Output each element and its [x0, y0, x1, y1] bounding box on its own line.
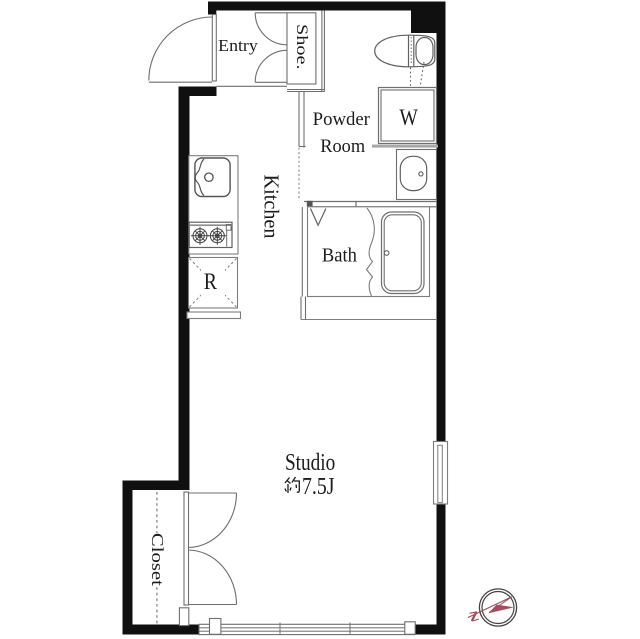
svg-text:Entry: Entry [218, 36, 258, 55]
svg-text:Studio: Studio [285, 450, 335, 476]
svg-text:Powder: Powder [313, 110, 370, 130]
svg-text:Shoe.: Shoe. [293, 24, 310, 70]
svg-text:Closet: Closet [148, 533, 167, 587]
svg-text:7.5J: 7.5J [302, 474, 335, 500]
svg-text:R: R [204, 269, 218, 294]
svg-text:Bath: Bath [322, 245, 357, 267]
svg-text:Kitchen: Kitchen [260, 175, 284, 239]
svg-text:Room: Room [320, 137, 366, 157]
svg-text:W: W [399, 105, 418, 130]
